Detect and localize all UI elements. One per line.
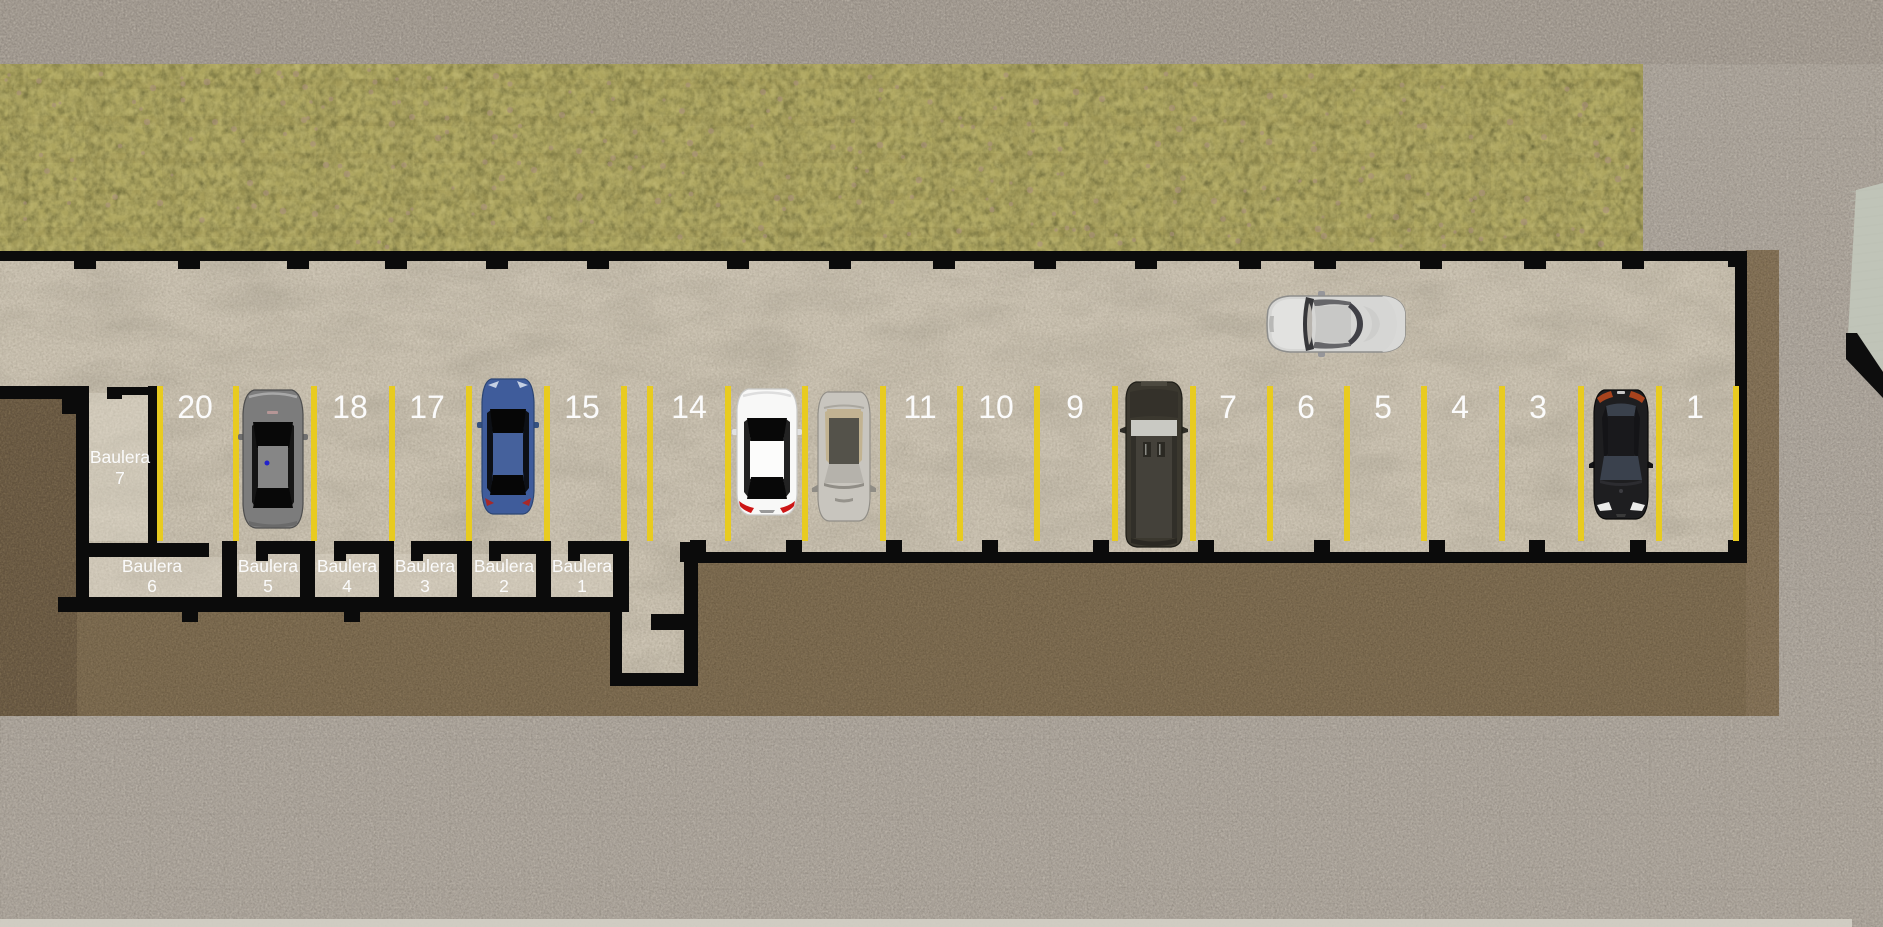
svg-text:14: 14 xyxy=(671,389,707,425)
svg-text:7: 7 xyxy=(115,468,125,488)
svg-text:Baulera: Baulera xyxy=(552,556,613,576)
svg-text:9: 9 xyxy=(1066,389,1084,425)
svg-text:Baulera: Baulera xyxy=(317,556,378,576)
svg-text:6: 6 xyxy=(147,576,157,596)
svg-text:5: 5 xyxy=(1374,389,1392,425)
svg-text:Baulera: Baulera xyxy=(238,556,299,576)
svg-text:Baulera: Baulera xyxy=(474,556,535,576)
svg-text:3: 3 xyxy=(420,576,430,596)
svg-text:5: 5 xyxy=(263,576,273,596)
svg-text:10: 10 xyxy=(978,389,1014,425)
svg-text:7: 7 xyxy=(1219,389,1237,425)
svg-text:20: 20 xyxy=(177,389,213,425)
svg-text:4: 4 xyxy=(342,576,352,596)
svg-text:1: 1 xyxy=(577,576,587,596)
svg-text:Baulera: Baulera xyxy=(90,447,151,467)
svg-text:2: 2 xyxy=(499,576,509,596)
svg-text:18: 18 xyxy=(332,389,368,425)
svg-text:11: 11 xyxy=(903,389,936,425)
svg-text:Baulera: Baulera xyxy=(395,556,456,576)
svg-text:1: 1 xyxy=(1686,389,1704,425)
svg-text:Baulera: Baulera xyxy=(122,556,183,576)
svg-text:6: 6 xyxy=(1297,389,1315,425)
svg-text:3: 3 xyxy=(1529,389,1547,425)
svg-text:15: 15 xyxy=(564,389,600,425)
svg-text:4: 4 xyxy=(1451,389,1469,425)
svg-text:17: 17 xyxy=(409,389,445,425)
